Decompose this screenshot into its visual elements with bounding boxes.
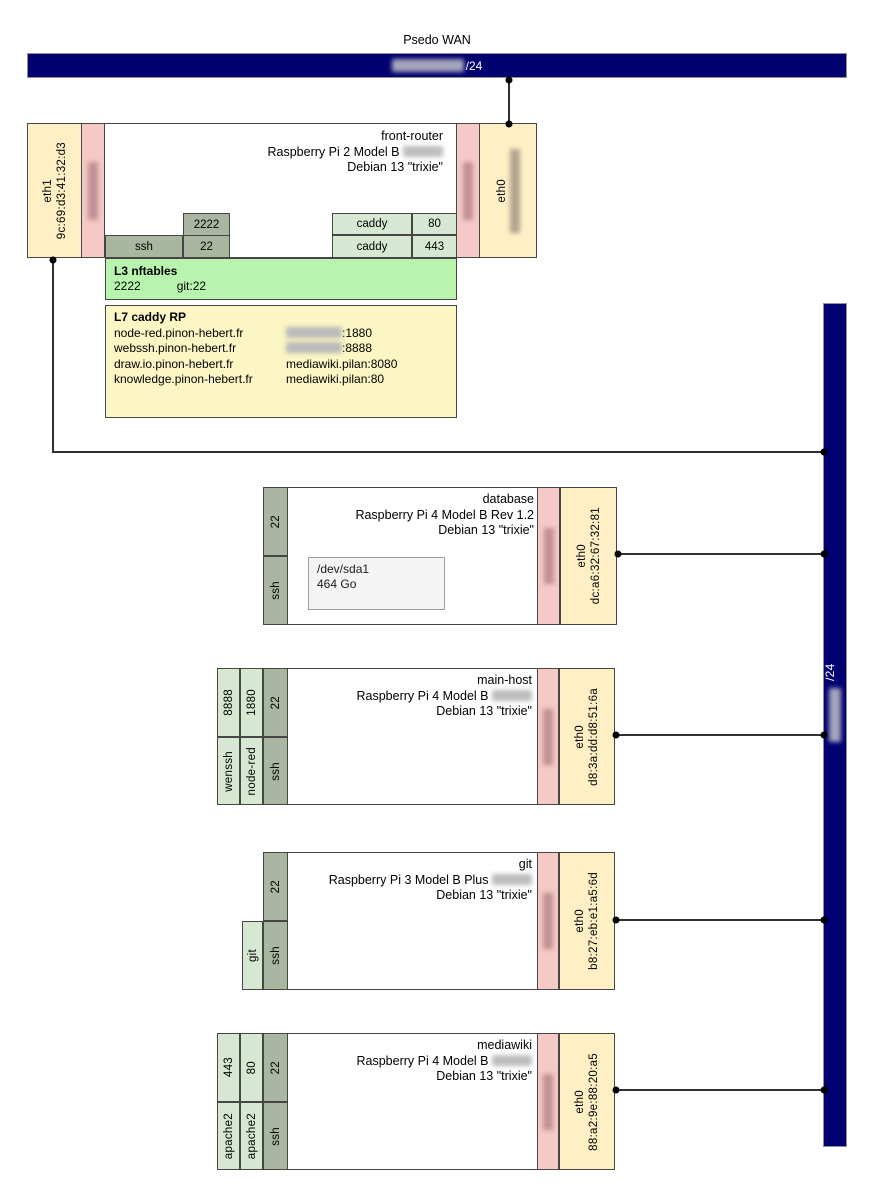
caddy-service-cell-443: caddy [332, 235, 412, 258]
git-eth0-label: eth0 [574, 909, 586, 933]
database-title: database Raspberry Pi 4 Model B Rev 1.2 … [300, 492, 534, 539]
git-title: git Raspberry Pi 3 Model B Plus Debian 1… [300, 857, 532, 904]
mainhost-model: Raspberry Pi 4 Model B [300, 689, 532, 705]
rp-target-ip-redacted [286, 327, 342, 338]
mainhost-name: main-host [300, 673, 532, 689]
database-eth0-dot [615, 551, 622, 558]
mainhost-to-lan-line [615, 734, 824, 736]
caddy-rp-rule: webssh.pinon-hebert.fr :8888 [114, 341, 448, 357]
front-router-os: Debian 13 "trixie" [110, 160, 443, 176]
router-eth1-dot [50, 257, 57, 264]
database-ip [537, 487, 560, 625]
lan-junction-dot-git [821, 917, 828, 924]
git-name: git [300, 857, 532, 873]
wan-junction-dot [506, 77, 513, 84]
caddy-rp-rule: knowledge.pinon-hebert.fr mediawiki.pila… [114, 372, 448, 388]
front-router-eth1-interface: eth1 9c:69:d3:41:32:d3 [27, 123, 82, 258]
caddy-port-cell-443: 443 [412, 235, 457, 258]
mediawiki-os: Debian 13 "trixie" [300, 1069, 532, 1085]
mediawiki-name: mediawiki [300, 1038, 532, 1054]
mediawiki-service-apache2-80: apache2 [240, 1102, 263, 1170]
eth1-label: eth1 [42, 179, 54, 203]
caddy-rp-title: L7 caddy RP [114, 310, 448, 326]
lan-junction-dot-mainhost [821, 732, 828, 739]
eth0-mac-redacted [510, 149, 520, 233]
git-model: Raspberry Pi 3 Model B Plus [300, 873, 532, 889]
mainhost-service-ssh: ssh [263, 737, 288, 805]
storage-size: 464 Go [317, 577, 436, 592]
lan-junction-dot-mediawiki [821, 1087, 828, 1094]
front-router-eth0-ip [456, 123, 480, 258]
mediawiki-model: Raspberry Pi 4 Model B [300, 1054, 532, 1070]
git-rev-redacted [492, 874, 532, 885]
wan-to-router-line [508, 78, 510, 124]
lan-junction-dot-database [821, 551, 828, 558]
database-to-lan-line [617, 553, 824, 555]
git-eth0-interface: eth0 b8:27:eb:e1:a5:6d [559, 852, 615, 990]
router-eth1-to-lan-line [52, 451, 824, 453]
mainhost-rev-redacted [492, 690, 532, 701]
database-name: database [300, 492, 534, 508]
wan-ip-redacted [392, 59, 464, 72]
mainhost-service-wenssh: wenssh [217, 737, 240, 805]
mediawiki-eth0-dot [613, 1087, 620, 1094]
nftables-rule: 2222git:22 [114, 279, 448, 294]
nat-external-port-cell: 2222 [183, 213, 230, 236]
router-eth0-dot [506, 121, 513, 128]
git-eth0-dot [613, 917, 620, 924]
mainhost-port-22: 22 [263, 668, 288, 737]
mainhost-title: main-host Raspberry Pi 4 Model B Debian … [300, 673, 532, 720]
database-model: Raspberry Pi 4 Model B Rev 1.2 [300, 508, 534, 524]
git-service-git: git [242, 921, 263, 990]
storage-device: /dev/sda1 [317, 562, 436, 577]
front-router-eth0-interface: eth0 [479, 123, 537, 258]
lan-junction-dot-router [821, 449, 828, 456]
database-storage-box: /dev/sda1 464 Go [308, 557, 445, 610]
git-port-22: 22 [263, 852, 288, 921]
database-service-ssh: ssh [263, 556, 288, 625]
mainhost-eth0-mac: d8:3a:dd:d8:51:6a [588, 688, 600, 786]
database-eth0-interface: eth0 dc:a6:32:67:32:81 [560, 487, 617, 625]
mainhost-port-8888: 8888 [217, 668, 240, 737]
mainhost-eth0-label: eth0 [574, 725, 586, 749]
mediawiki-rev-redacted [492, 1055, 532, 1066]
lan-ip-redacted [829, 688, 841, 742]
eth1-ip-redacted [88, 162, 98, 220]
wan-bus: /24 [27, 53, 847, 78]
database-eth0-label: eth0 [576, 544, 588, 568]
nftables-title: L3 nftables [114, 264, 448, 279]
eth0-label: eth0 [496, 179, 508, 203]
git-eth0-mac: b8:27:eb:e1:a5:6d [588, 872, 600, 970]
ssh-port-cell: 22 [183, 235, 230, 258]
rp-target-ip-redacted [286, 342, 342, 353]
front-router-rev-redacted [403, 146, 443, 157]
nftables-box: L3 nftables 2222git:22 [105, 258, 457, 300]
git-ip-redacted [543, 893, 553, 949]
database-ip-redacted [544, 528, 554, 584]
mainhost-ip-redacted [543, 709, 553, 765]
mainhost-port-1880: 1880 [240, 668, 263, 737]
caddy-rp-box: L7 caddy RP node-red.pinon-hebert.fr :18… [105, 305, 457, 418]
front-router-eth1-ip [81, 123, 105, 258]
wan-cidr-suffix: /24 [466, 59, 483, 73]
caddy-rp-rule: draw.io.pinon-hebert.fr mediawiki.pilan:… [114, 357, 448, 373]
database-port-22: 22 [263, 487, 288, 556]
mediawiki-to-lan-line [615, 1089, 824, 1091]
mediawiki-title: mediawiki Raspberry Pi 4 Model B Debian … [300, 1038, 532, 1085]
caddy-rp-rule: node-red.pinon-hebert.fr :1880 [114, 326, 448, 342]
mediawiki-service-ssh: ssh [263, 1102, 288, 1170]
mainhost-service-node-red: node-red [240, 737, 263, 805]
wan-title: Psedo WAN [27, 33, 847, 47]
mainhost-eth0-dot [613, 732, 620, 739]
git-to-lan-line [615, 919, 824, 921]
git-service-ssh: ssh [263, 921, 288, 990]
router-eth1-down-line [52, 258, 54, 452]
mediawiki-port-443: 443 [217, 1033, 240, 1102]
mediawiki-ip-redacted [543, 1074, 553, 1130]
database-eth0-mac: dc:a6:32:67:32:81 [590, 507, 602, 604]
mediawiki-service-apache2-443: apache2 [217, 1102, 240, 1170]
front-router-title: front-router Raspberry Pi 2 Model B Debi… [110, 129, 443, 176]
network-diagram: Psedo WAN /24 eth1 9c:69:d3:41:32:d3 eth… [0, 0, 879, 1192]
mainhost-os: Debian 13 "trixie" [300, 704, 532, 720]
mediawiki-port-22: 22 [263, 1033, 288, 1102]
git-os: Debian 13 "trixie" [300, 888, 532, 904]
mediawiki-eth0-mac: 88:a2:9e:88:20:a5 [588, 1053, 600, 1151]
mediawiki-eth0-interface: eth0 88:a2:9e:88:20:a5 [559, 1033, 615, 1170]
eth0-ip-redacted [463, 162, 473, 220]
front-router-model: Raspberry Pi 2 Model B [110, 145, 443, 161]
caddy-service-cell-80: caddy [332, 213, 412, 235]
eth1-mac: 9c:69:d3:41:32:d3 [56, 142, 68, 239]
mainhost-eth0-interface: eth0 d8:3a:dd:d8:51:6a [559, 668, 615, 805]
git-ip [537, 852, 559, 990]
front-router-name: front-router [110, 129, 443, 145]
mediawiki-ip [537, 1033, 559, 1170]
lan-cidr-suffix: /24 [823, 658, 847, 686]
mainhost-ip [537, 668, 559, 805]
mediawiki-eth0-label: eth0 [574, 1090, 586, 1114]
ssh-service-cell: ssh [105, 235, 183, 258]
mediawiki-port-80: 80 [240, 1033, 263, 1102]
caddy-port-cell-80: 80 [412, 213, 457, 235]
database-os: Debian 13 "trixie" [300, 523, 534, 539]
